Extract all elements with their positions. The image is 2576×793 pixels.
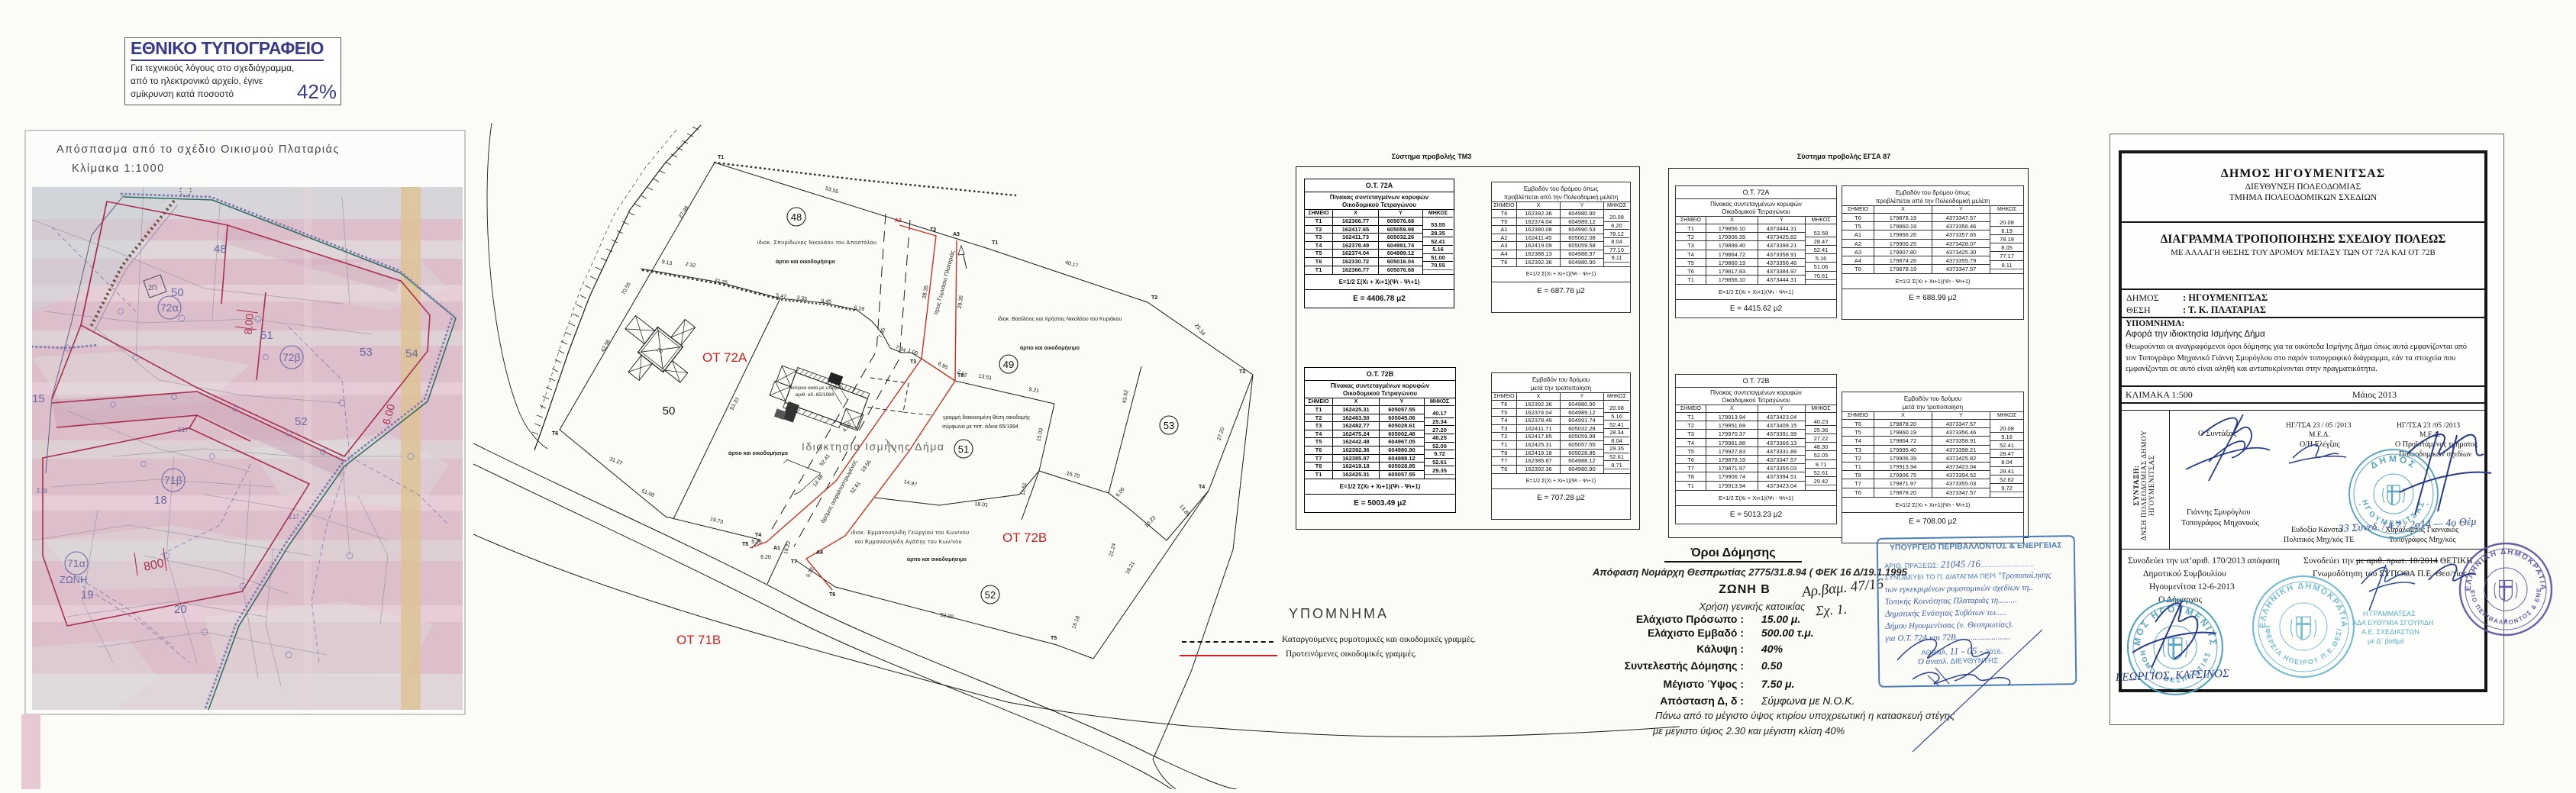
svg-text:52: 52: [295, 415, 308, 428]
svg-text:53: 53: [1164, 420, 1174, 431]
svg-text:ΠΕΡΙΦΕΡΕΙΑ ΗΠΕΙΡΟΥ Π.Ε.ΘΕΣ/ΤΙΑ: ΠΕΡΙΦΕΡΕΙΑ ΗΠΕΙΡΟΥ Π.Ε.ΘΕΣ/ΤΙΑΣ: [2264, 621, 2343, 666]
svg-text:Η ΓΡΑΜΜΑΤΕΑΣ: Η ΓΡΑΜΜΑΤΕΑΣ: [2363, 610, 2416, 617]
svg-text:51: 51: [260, 329, 273, 342]
svg-text:ΟΤ 72Α: ΟΤ 72Α: [702, 350, 747, 365]
svg-text:18.22: 18.22: [783, 540, 792, 555]
svg-text:9.21: 9.21: [1028, 387, 1040, 394]
svg-text:27.99: 27.99: [678, 205, 690, 219]
svg-text:Τ3: Τ3: [1239, 369, 1245, 375]
svg-text:ΖΩΝΗ: ΖΩΝΗ: [60, 574, 87, 585]
svg-text:2Π: 2Π: [655, 347, 663, 356]
svg-text:19: 19: [81, 588, 94, 601]
svg-text:Α2: Α2: [895, 218, 902, 224]
svg-text:71β: 71β: [164, 474, 182, 486]
svg-text:σύμφωνα με τοπ. άδεια 65/1: σύμφωνα με τοπ. άδεια 65/1994: [942, 424, 1018, 430]
svg-text:43.62: 43.62: [1122, 389, 1130, 404]
svg-text:52: 52: [985, 589, 996, 601]
svg-text:ΔΗΜΟΣ: ΔΗΜΟΣ: [2368, 453, 2419, 471]
svg-text:27.20: 27.20: [1217, 427, 1226, 441]
svg-text:Α3: Α3: [953, 232, 960, 237]
svg-text:72α: 72α: [160, 301, 179, 314]
svg-text:άρτιο και οικοδομήσιμο: άρτιο και οικοδομήσιμο: [728, 451, 788, 456]
svg-text:52.00: 52.00: [940, 612, 954, 620]
svg-text:Σ17: Σ17: [289, 514, 299, 521]
svg-text:16.70: 16.70: [1066, 471, 1080, 479]
svg-text:Σ19: Σ19: [37, 488, 47, 495]
svg-text:άρτιο και οικοδομήσιμο: άρτιο και οικοδομήσιμο: [1020, 346, 1080, 351]
svg-text:21.25: 21.25: [714, 278, 728, 286]
svg-text:Τ5: Τ5: [1051, 636, 1057, 641]
svg-text:15.03: 15.03: [1036, 427, 1044, 442]
svg-text:Τ4: Τ4: [755, 533, 761, 538]
svg-text:48: 48: [791, 211, 802, 223]
svg-text:8.00: 8.00: [242, 313, 256, 335]
svg-text:54: 54: [405, 347, 418, 360]
svg-text:ΟΤ 72Β: ΟΤ 72Β: [1002, 530, 1047, 545]
svg-text:αριθ. αδ. 65/1994: αριθ. αδ. 65/1994: [796, 392, 834, 398]
svg-text:5.16: 5.16: [751, 540, 762, 545]
svg-text:52.41: 52.41: [819, 453, 831, 467]
svg-text:6.19: 6.19: [854, 305, 865, 312]
svg-text:19.73: 19.73: [709, 517, 724, 526]
svg-text:Α4: Α4: [816, 550, 823, 556]
svg-text:Τ2: Τ2: [930, 227, 936, 233]
svg-text:Τ3: Τ3: [910, 359, 916, 365]
svg-text:13.51: 13.51: [978, 374, 993, 382]
svg-text:ΕΛΛΗΝΙΚΗ ΔΗΜΟΚΡΑΤΙΑ: ΕΛΛΗΝΙΚΗ ΔΗΜΟΚΡΑΤΙΑ: [2258, 582, 2348, 628]
svg-text:50: 50: [663, 405, 676, 417]
svg-text:52.61: 52.61: [850, 481, 862, 495]
svg-text:Κλίμακα 1:1000: Κλίμακα 1:1000: [72, 163, 165, 175]
svg-text:Τ8: Τ8: [957, 373, 964, 379]
svg-text:48: 48: [214, 243, 227, 256]
svg-text:2Π: 2Π: [148, 284, 157, 292]
svg-text:Τ1: Τ1: [718, 155, 724, 160]
svg-text:γραμμή διακεκομένη θέση οικ: γραμμή διακεκομένη θέση οικοδομής: [943, 414, 1031, 421]
svg-text:άρτιο και οικοδομήσιμο: άρτιο και οικοδομήσιμο: [776, 259, 835, 265]
svg-text:15.18: 15.18: [1071, 615, 1081, 630]
svg-text:Απόσπασμα από το σχέδιο Οι: Απόσπασμα από το σχέδιο Οικισμού Πλαταρι…: [56, 143, 340, 156]
svg-text:13.85: 13.85: [1178, 504, 1190, 517]
svg-text:ΓΕΩΡΓΙΟΣ, ΚΑΤΣΙΝΟΣ: ΓΕΩΡΓΙΟΣ, ΚΑΤΣΙΝΟΣ: [2115, 668, 2230, 684]
svg-text:Τ5: Τ5: [742, 542, 748, 547]
svg-text:1.00: 1.00: [907, 348, 918, 356]
svg-text:31.27: 31.27: [608, 456, 623, 466]
svg-text:ισόγεια οικία με υπόγειο: ισόγεια οικία με υπόγειο: [791, 385, 844, 391]
svg-text:2.32: 2.32: [685, 262, 696, 269]
svg-text:72β: 72β: [282, 351, 301, 363]
svg-text:άρτιο και οικοδομήσιμο: άρτιο και οικοδομήσιμο: [907, 557, 967, 563]
svg-text:Ιδιοκτησία Ισμήνης Δήμα: Ιδιοκτησία Ισμήνης Δήμα: [802, 440, 944, 453]
svg-text:9.13: 9.13: [661, 259, 673, 267]
svg-text:ιδιοκ. Εμμανουηλίδη Γεώργιου: ιδιοκ. Εμμανουηλίδη Γεώργιου του Κων/νου: [851, 530, 969, 536]
svg-text:15: 15: [32, 392, 45, 405]
svg-text:50: 50: [171, 286, 184, 299]
svg-text:18.01: 18.01: [974, 501, 988, 508]
svg-text:ιδιοκ. Σπυρίδωνος Νικολάου: ιδιοκ. Σπυρίδωνος Νικολάου του Αποστόλου: [757, 240, 877, 246]
svg-text:ΑΔΑ ΕΥΘΥΜΙΑ ΣΓΟΥΡΙΔΗ: ΑΔΑ ΕΥΘΥΜΙΑ ΣΓΟΥΡΙΔΗ: [2352, 619, 2434, 627]
svg-text:Α1: Α1: [773, 546, 780, 551]
svg-text:Σ17: Σ17: [178, 427, 189, 434]
svg-text:6.06: 6.06: [1115, 486, 1126, 498]
svg-text:19.21: 19.21: [1125, 561, 1136, 575]
svg-text:20: 20: [174, 603, 187, 616]
svg-text:71α: 71α: [67, 557, 86, 569]
svg-text:6.20: 6.20: [760, 555, 771, 560]
svg-text:21.24: 21.24: [1109, 543, 1117, 557]
svg-text:Τ6: Τ6: [552, 431, 558, 437]
svg-text:51.00: 51.00: [641, 488, 655, 498]
svg-text:18: 18: [154, 494, 167, 507]
svg-text:Τ4: Τ4: [1199, 485, 1205, 490]
svg-text:Τ2: Τ2: [1151, 295, 1157, 301]
svg-text:19.55: 19.55: [860, 459, 873, 473]
svg-text:40.17: 40.17: [1064, 260, 1079, 269]
svg-text:53.55: 53.55: [825, 186, 839, 195]
svg-text:και Εμμανουηλίδη Αγάπης του: και Εμμανουηλίδη Αγάπης του Κων/νου: [855, 539, 962, 545]
svg-text:11.51: 11.51: [1021, 482, 1028, 496]
svg-text:14.97: 14.97: [903, 479, 918, 488]
svg-text:51: 51: [958, 443, 969, 455]
svg-text:με Δ΄ βαθμό: με Δ΄ βαθμό: [2368, 637, 2404, 645]
svg-text:8.45: 8.45: [821, 298, 831, 305]
svg-text:29.35: 29.35: [957, 295, 964, 309]
svg-text:Τ6: Τ6: [829, 592, 835, 598]
svg-text:Α.Ε. ΣΧΕΔΙΑΣΤΩΝ: Α.Ε. ΣΧΕΔΙΑΣΤΩΝ: [2361, 628, 2419, 636]
svg-text:ΟΤ 71Β: ΟΤ 71Β: [676, 633, 721, 647]
svg-text:70.55: 70.55: [621, 282, 632, 296]
svg-text:53: 53: [360, 346, 373, 359]
svg-text:Τ1: Τ1: [992, 240, 998, 246]
svg-text:49: 49: [1003, 359, 1014, 370]
svg-text:προς Γυμνάσιο Πλαταριάς: προς Γυμνάσιο Πλαταριάς: [932, 250, 956, 316]
svg-text:Τ7: Τ7: [791, 559, 797, 565]
svg-text:7.35: 7.35: [878, 327, 887, 339]
svg-text:12.48: 12.48: [812, 474, 825, 488]
svg-text:4.23: 4.23: [842, 421, 853, 433]
svg-text:ιδιοκ. Βασίλειος και Χρήστο: ιδιοκ. Βασίλειος και Χρήστος Νικολάου το…: [998, 316, 1122, 322]
svg-text:42.56: 42.56: [600, 339, 611, 353]
